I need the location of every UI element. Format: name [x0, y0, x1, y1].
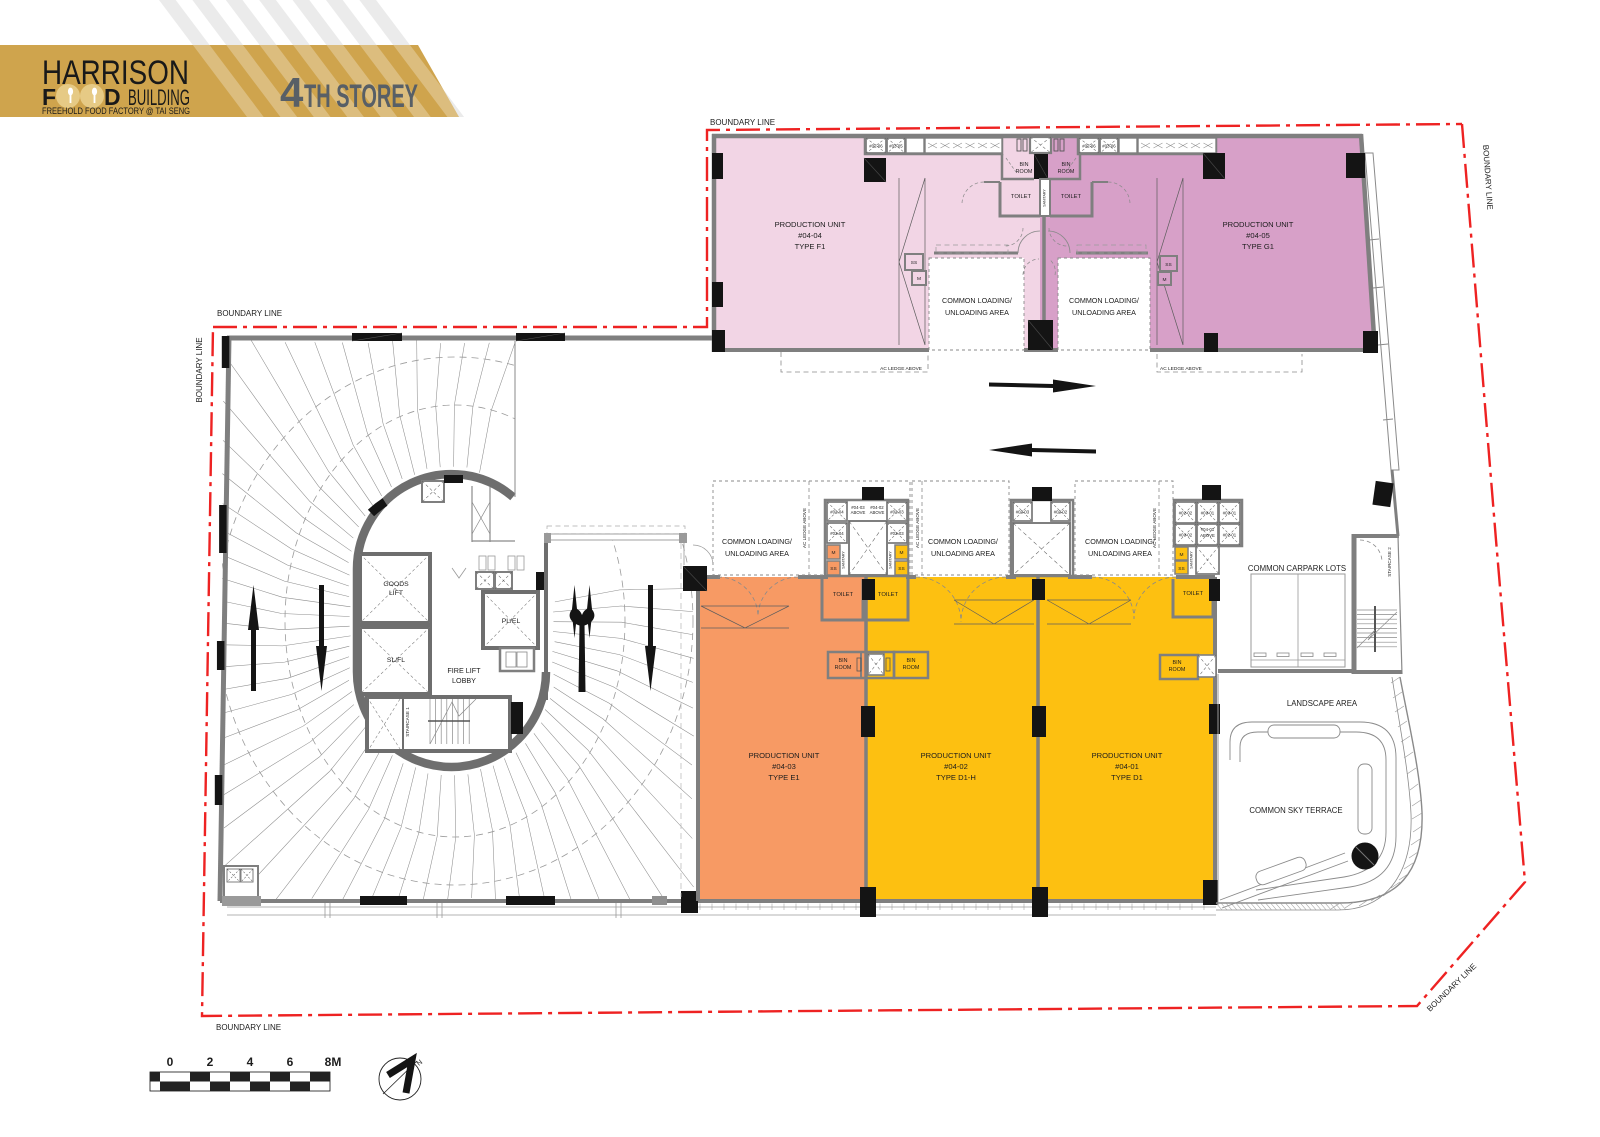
svg-text:UNLOADING AREA: UNLOADING AREA [725, 549, 789, 558]
svg-text:TOILET: TOILET [833, 592, 854, 598]
svg-text:SANITARY: SANITARY [1043, 189, 1047, 207]
svg-text:SS: SS [830, 566, 836, 572]
svg-text:#04-02: #04-02 [944, 762, 968, 771]
svg-text:#03-03: #03-03 [1016, 510, 1030, 515]
svg-text:FREEHOLD FOOD FACTORY @ TAI SE: FREEHOLD FOOD FACTORY @ TAI SENG [42, 106, 190, 117]
svg-text:BIN: BIN [1173, 660, 1182, 666]
svg-text:COMMON SKY TERRACE: COMMON SKY TERRACE [1249, 806, 1342, 815]
svg-text:#03-05: #03-05 [889, 144, 903, 149]
svg-text:TYPE E1: TYPE E1 [768, 773, 799, 782]
svg-text:STAIRCASE 1: STAIRCASE 1 [405, 707, 410, 737]
svg-text:0: 0 [167, 1055, 174, 1069]
svg-text:PL/EL: PL/EL [502, 618, 521, 625]
svg-text:COMMON LOADING/: COMMON LOADING/ [1085, 537, 1155, 546]
svg-text:UNLOADING AREA: UNLOADING AREA [945, 308, 1009, 317]
svg-text:UNLOADING AREA: UNLOADING AREA [1088, 549, 1152, 558]
svg-text:#02-02: #02-02 [1179, 511, 1193, 516]
svg-text:4: 4 [247, 1055, 254, 1069]
svg-text:ABOVE: ABOVE [1200, 533, 1215, 538]
svg-text:ROOM: ROOM [835, 665, 852, 671]
svg-text:AC LEDGE ABOVE: AC LEDGE ABOVE [880, 366, 922, 372]
svg-text:#03-01: #03-01 [1201, 511, 1215, 516]
svg-text:COMMON LOADING/: COMMON LOADING/ [942, 296, 1012, 305]
svg-text:TOILET: TOILET [1011, 194, 1032, 200]
svg-text:TYPE D1-H: TYPE D1-H [936, 773, 976, 782]
svg-text:8M: 8M [325, 1055, 342, 1069]
svg-text:AC LEDGE ABOVE: AC LEDGE ABOVE [1160, 366, 1202, 372]
svg-text:PRODUCTION UNIT: PRODUCTION UNIT [1092, 751, 1163, 760]
svg-text:SL/FL: SL/FL [387, 657, 405, 664]
svg-text:GOODS: GOODS [383, 581, 409, 588]
svg-text:BIN: BIN [839, 658, 848, 664]
svg-text:BIN: BIN [1020, 162, 1029, 168]
svg-text:TOILET: TOILET [878, 592, 899, 598]
svg-text:PRODUCTION UNIT: PRODUCTION UNIT [1223, 220, 1294, 229]
svg-text:TYPE G1: TYPE G1 [1242, 242, 1274, 251]
svg-text:ROOM: ROOM [903, 665, 920, 671]
svg-text:#03-02: #03-02 [1179, 533, 1193, 538]
svg-text:AC LEDGE ABOVE: AC LEDGE ABOVE [915, 508, 920, 548]
svg-text:BIN: BIN [907, 658, 916, 664]
svg-text:TYPE D1: TYPE D1 [1111, 773, 1143, 782]
svg-text:COMMON LOADING/: COMMON LOADING/ [1069, 296, 1139, 305]
svg-text:SS: SS [1178, 566, 1184, 572]
svg-text:#03-02: #03-02 [1054, 510, 1068, 515]
svg-text:SANITARY: SANITARY [889, 551, 893, 569]
svg-text:ROOM: ROOM [1016, 169, 1033, 175]
svg-text:M: M [917, 276, 921, 282]
svg-text:#02-03: #02-03 [890, 510, 904, 515]
svg-text:FIRE LIFT: FIRE LIFT [447, 666, 481, 675]
svg-text:COMMON LOADING/: COMMON LOADING/ [928, 537, 998, 546]
svg-text:ABOVE: ABOVE [851, 510, 866, 515]
svg-text:SANITARY: SANITARY [842, 551, 846, 569]
svg-text:#04-05: #04-05 [1246, 231, 1270, 240]
svg-text:TOILET: TOILET [1061, 194, 1082, 200]
svg-text:BOUNDARY LINE: BOUNDARY LINE [195, 337, 204, 402]
svg-text:UNLOADING AREA: UNLOADING AREA [931, 549, 995, 558]
svg-text:TH STOREY: TH STOREY [304, 78, 418, 114]
svg-text:#03-06: #03-06 [1102, 144, 1116, 149]
svg-text:#03-03: #03-03 [890, 531, 904, 536]
svg-text:AC LEDGE ABOVE: AC LEDGE ABOVE [802, 508, 807, 548]
svg-text:M: M [900, 550, 904, 556]
svg-text:6: 6 [287, 1055, 294, 1069]
svg-text:SS: SS [1165, 262, 1171, 268]
svg-text:ROOM: ROOM [1169, 667, 1186, 673]
svg-text:#04-04: #04-04 [798, 231, 822, 240]
svg-text:UNLOADING AREA: UNLOADING AREA [1072, 308, 1136, 317]
svg-text:TYPE F1: TYPE F1 [795, 242, 826, 251]
svg-text:BOUNDARY LINE: BOUNDARY LINE [216, 1023, 281, 1032]
svg-text:#04-01: #04-01 [1201, 527, 1215, 532]
svg-text:PRODUCTION UNIT: PRODUCTION UNIT [749, 751, 820, 760]
svg-text:COMMON CARPARK LOTS: COMMON CARPARK LOTS [1248, 564, 1346, 573]
svg-text:SANITARY: SANITARY [1190, 551, 1194, 569]
svg-text:SS: SS [911, 260, 917, 266]
svg-text:M: M [1163, 277, 1167, 283]
svg-text:AC LEDGE ABOVE: AC LEDGE ABOVE [1152, 508, 1157, 548]
svg-text:TOILET: TOILET [1183, 591, 1204, 597]
svg-text:STAIRCASE 2: STAIRCASE 2 [1387, 547, 1392, 577]
svg-text:#02-06: #02-06 [869, 144, 883, 149]
svg-text:4: 4 [280, 69, 304, 116]
svg-text:LOBBY: LOBBY [452, 676, 476, 685]
svg-text:#03-01: #03-01 [1223, 511, 1237, 516]
svg-text:PRODUCTION UNIT: PRODUCTION UNIT [775, 220, 846, 229]
svg-text:#04-03: #04-03 [772, 762, 796, 771]
svg-text:LIFT: LIFT [389, 590, 403, 597]
svg-text:#02-01: #02-01 [1223, 533, 1237, 538]
svg-text:#02-06: #02-06 [1082, 144, 1096, 149]
svg-text:BOUNDARY LINE: BOUNDARY LINE [710, 118, 775, 127]
svg-text:M: M [1180, 552, 1184, 558]
svg-text:LANDSCAPE AREA: LANDSCAPE AREA [1287, 699, 1358, 708]
svg-text:2: 2 [207, 1055, 214, 1069]
svg-text:COMMON LOADING/: COMMON LOADING/ [722, 537, 792, 546]
svg-text:SS: SS [898, 566, 904, 572]
svg-text:BOUNDARY LINE: BOUNDARY LINE [217, 309, 282, 318]
svg-text:ABOVE: ABOVE [870, 510, 885, 515]
svg-text:#04-01: #04-01 [1115, 762, 1139, 771]
svg-text:#03-04: #03-04 [830, 531, 844, 536]
svg-text:M: M [832, 550, 836, 556]
svg-text:#02-04: #02-04 [830, 510, 844, 515]
svg-text:PRODUCTION UNIT: PRODUCTION UNIT [921, 751, 992, 760]
